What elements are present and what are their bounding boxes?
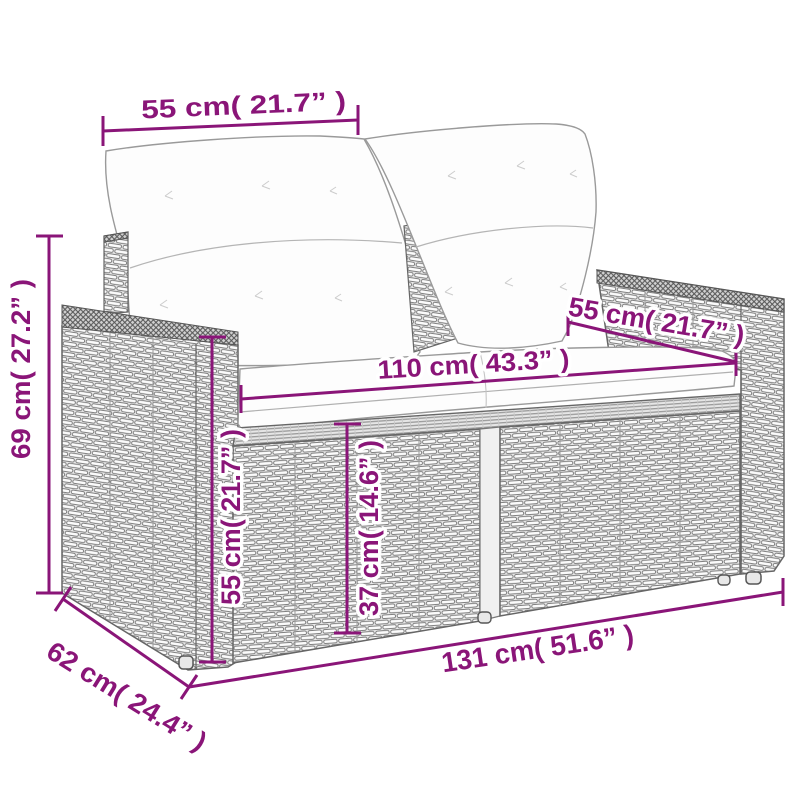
svg-text:55 cm( 21.7” ): 55 cm( 21.7” ): [216, 429, 246, 605]
svg-text:69 cm( 27.2” ): 69 cm( 27.2” ): [6, 279, 36, 459]
svg-text:37 cm( 14.6” ): 37 cm( 14.6” ): [354, 440, 384, 616]
